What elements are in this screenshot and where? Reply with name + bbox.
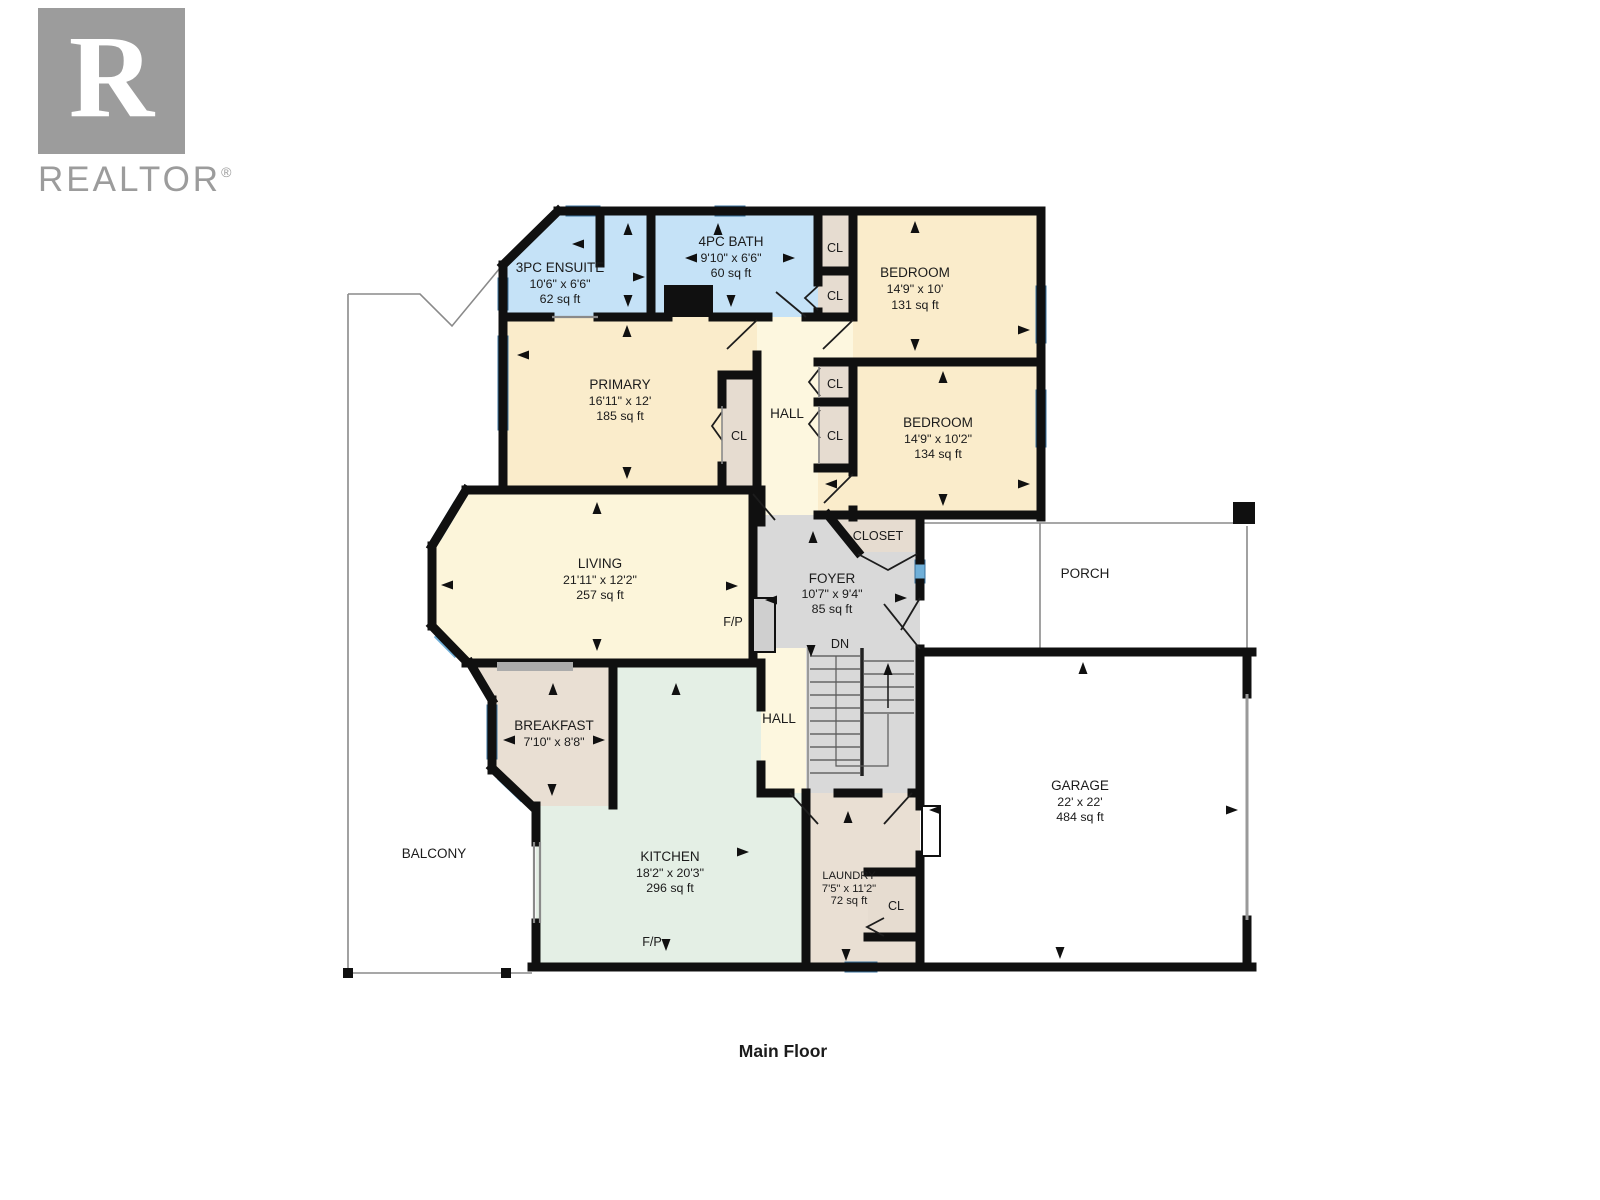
entry-closet-label: CLOSET [853,529,904,543]
halfwall-breakfast [497,662,573,671]
living-label: LIVING [578,556,622,571]
bath-label: 4PC BATH [698,234,763,249]
floorplan-drawing: 3PC ENSUITE 10'6" x 6'6" 62 sq ft 4PC BA… [0,0,1600,1200]
fireplace-living [753,598,775,652]
kitchen-label: KITCHEN [640,849,699,864]
wall-block-bath [664,285,713,317]
ensuite-dims: 10'6" x 6'6" [529,277,590,291]
primary-label: PRIMARY [589,377,650,392]
living-dims: 21'11" x 12'2" [563,573,637,587]
hall-lower-label: HALL [762,711,796,726]
closet-hall-b-label: CL [827,429,843,443]
bedroom2-label: BEDROOM [903,415,973,430]
bath-area: 60 sq ft [711,266,752,280]
primary-area: 185 sq ft [596,409,644,423]
foyer-dims: 10'7" x 9'4" [801,587,862,601]
closet-a-label: CL [827,241,843,255]
fireplace-living-label: F/P [723,615,743,629]
closet-primary-label: CL [731,429,747,443]
closet-laundry-label: CL [888,899,904,913]
bedroom1-area: 131 sq ft [891,298,939,312]
foyer-area: 85 sq ft [812,602,853,616]
room-bedroom1 [853,211,1041,362]
porch-post [1233,502,1255,524]
primary-dims: 16'11" x 12' [589,394,652,408]
garage-entry-door-leaf [922,806,940,856]
foyer-label: FOYER [809,571,856,586]
breakfast-dims: 7'10" x 8'8" [523,735,584,749]
laundry-dims: 7'5" x 11'2" [822,883,876,895]
floor-title: Main Floor [739,1041,828,1061]
balcony-label: BALCONY [402,846,467,861]
ensuite-label: 3PC ENSUITE [516,260,605,275]
bath-dims: 9'10" x 6'6" [700,251,761,265]
garage-label: GARAGE [1051,778,1109,793]
balcony-post-left [343,968,353,978]
porch-area [920,523,1247,652]
garage-dims: 22' x 22' [1057,795,1102,809]
closet-hall-a-label: CL [827,377,843,391]
laundry-label: LAUNDRY [822,870,876,882]
bedroom2-dims: 14'9" x 10'2" [904,432,972,446]
kitchen-area: 296 sq ft [646,881,694,895]
porch-label: PORCH [1061,566,1110,581]
stairs-down-label: DN [831,637,849,651]
floorplan-page: R REALTOR® [0,0,1600,1200]
fireplace-kitchen-label: F/P [642,935,662,949]
breakfast-label: BREAKFAST [514,718,594,733]
closet-b-label: CL [827,289,843,303]
ensuite-area: 62 sq ft [540,292,581,306]
bedroom1-dims: 14'9" x 10' [887,282,944,296]
balcony-post-mid [501,968,511,978]
kitchen-dims: 18'2" x 20'3" [636,866,704,880]
laundry-area: 72 sq ft [831,895,869,907]
bedroom1-label: BEDROOM [880,265,950,280]
bedroom2-area: 134 sq ft [914,447,962,461]
hall-upper-label: HALL [770,406,804,421]
garage-area: 484 sq ft [1056,810,1104,824]
living-area: 257 sq ft [576,588,624,602]
